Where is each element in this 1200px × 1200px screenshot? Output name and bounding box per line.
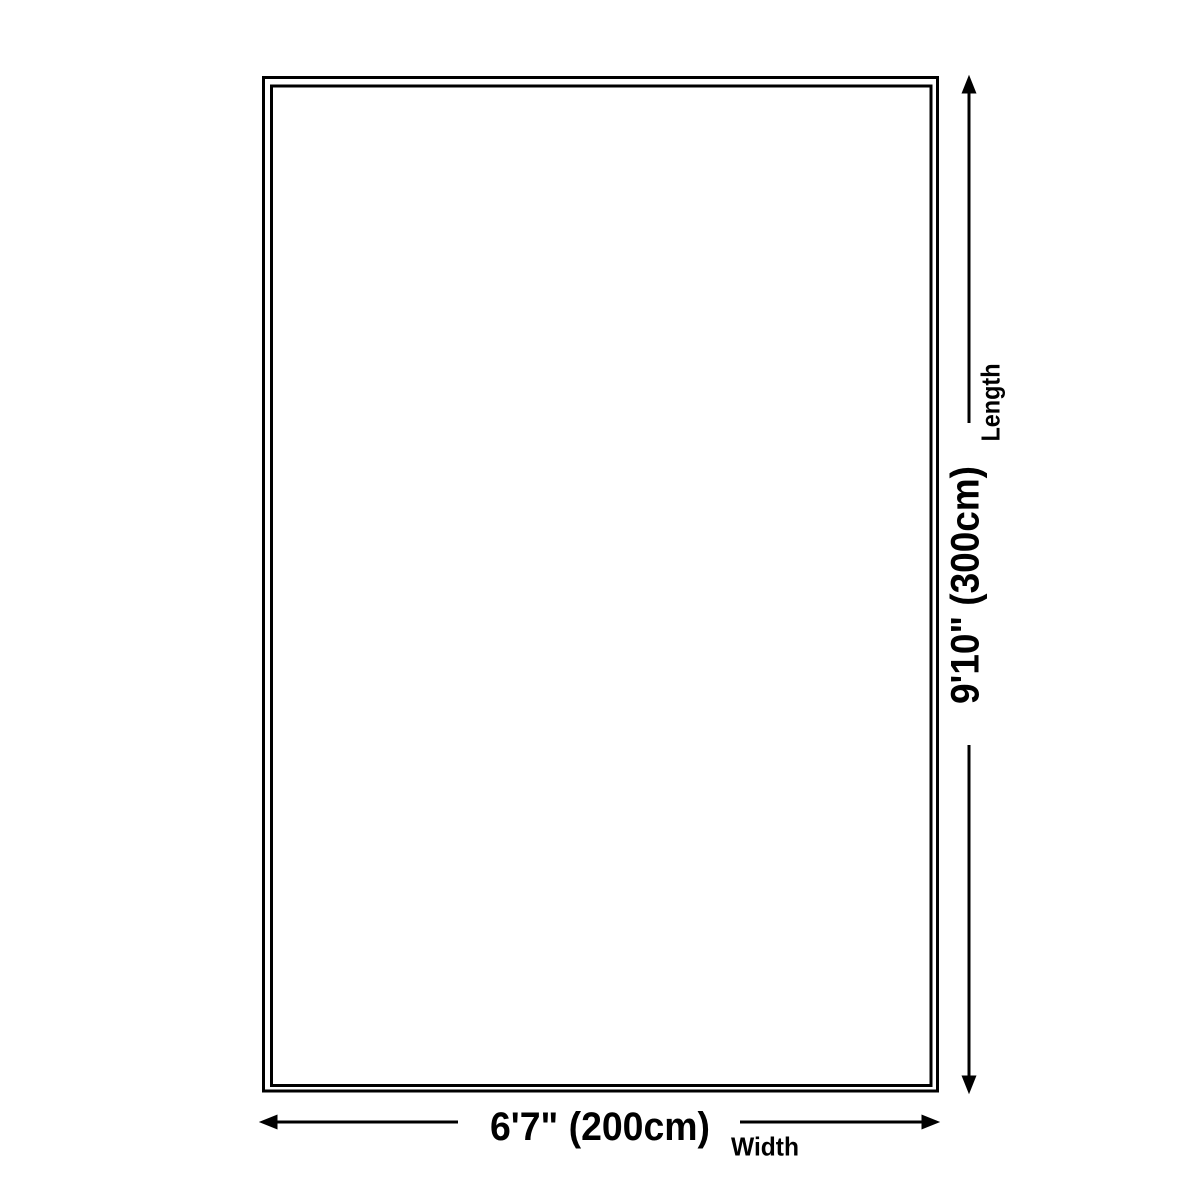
svg-text:9'10" (300cm): 9'10" (300cm) — [944, 466, 988, 704]
svg-text:Width: Width — [731, 1132, 799, 1162]
svg-text:Length: Length — [976, 364, 1006, 442]
svg-text:6'7" (200cm): 6'7" (200cm) — [490, 1105, 710, 1149]
